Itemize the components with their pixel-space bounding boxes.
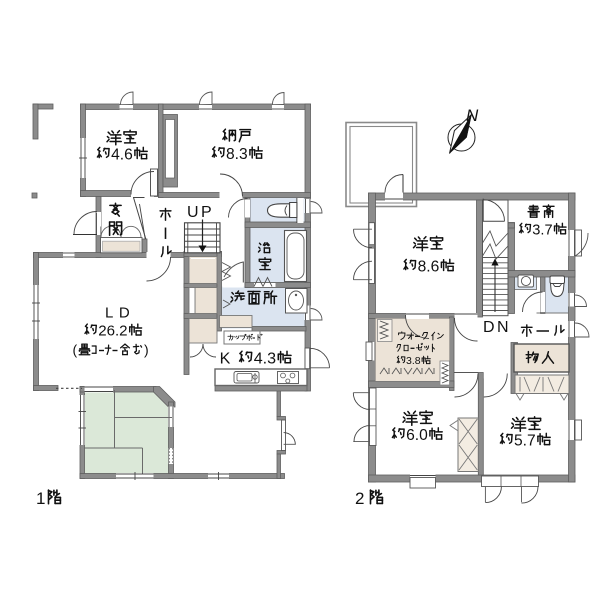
svg-text:K: K — [220, 350, 231, 368]
svg-text:3.8: 3.8 — [406, 355, 421, 367]
svg-text:8.6: 8.6 — [418, 258, 440, 275]
svg-text:8.3: 8.3 — [226, 146, 248, 163]
svg-text:LD: LD — [105, 305, 135, 322]
svg-text:N: N — [466, 106, 479, 125]
svg-text:): ) — [144, 342, 149, 358]
svg-text:2: 2 — [355, 489, 364, 508]
svg-text:DN: DN — [483, 319, 511, 336]
svg-text:4.3: 4.3 — [254, 350, 276, 368]
svg-text:(: ( — [73, 342, 78, 358]
svg-text:3.7: 3.7 — [532, 223, 552, 239]
svg-text:6.0: 6.0 — [406, 427, 428, 444]
svg-text:UP: UP — [187, 204, 214, 221]
svg-text:5.7: 5.7 — [514, 432, 536, 449]
svg-text:4.6: 4.6 — [111, 146, 133, 163]
svg-text:1: 1 — [36, 489, 45, 508]
svg-text:26.2: 26.2 — [98, 323, 127, 340]
